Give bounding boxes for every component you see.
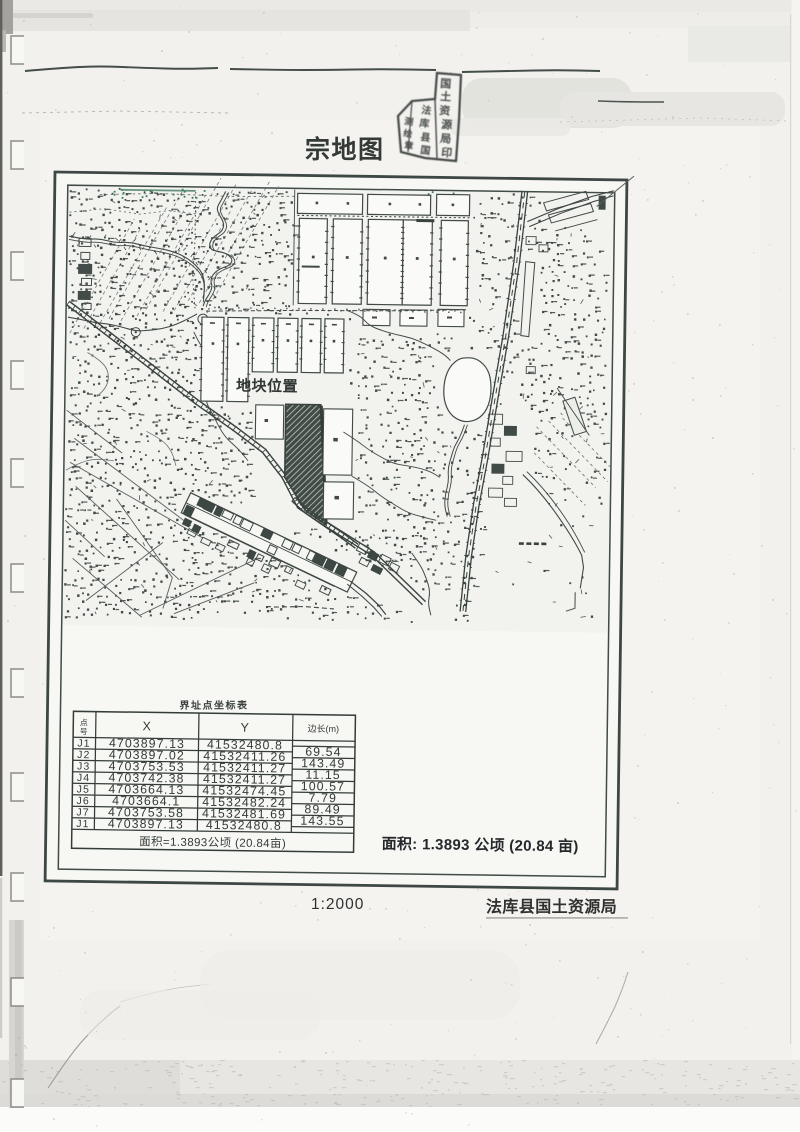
svg-text:章: 章 [404,139,414,151]
svg-text:41532480.8: 41532480.8 [206,818,282,833]
svg-text:Y: Y [240,721,250,735]
svg-text:点: 点 [80,718,89,727]
svg-text:143.55: 143.55 [300,814,344,829]
svg-text:J1: J1 [76,818,89,830]
svg-text:法库县国土资源局: 法库县国土资源局 [486,897,617,916]
svg-text:J7: J7 [76,807,89,819]
svg-text:J4: J4 [77,772,90,784]
svg-text:宗地图: 宗地图 [305,135,385,164]
svg-text:面积: 1.3893 公顷 (20.84 亩): 面积: 1.3893 公顷 (20.84 亩) [382,835,579,856]
svg-text:1:2000: 1:2000 [311,896,364,913]
svg-text:边长(m): 边长(m) [307,723,339,734]
svg-text:4703897.13: 4703897.13 [108,817,184,832]
svg-text:资: 资 [439,103,451,118]
svg-text:J1: J1 [77,738,90,750]
svg-text:X: X [142,719,152,733]
svg-text:国: 国 [420,144,432,157]
svg-text:J2: J2 [77,749,90,761]
svg-text:J5: J5 [77,784,90,796]
svg-text:国: 国 [440,77,452,91]
svg-text:地块位置: 地块位置 [236,377,298,396]
svg-text:J6: J6 [76,795,89,807]
svg-text:局: 局 [439,132,452,146]
svg-text:绘: 绘 [403,127,413,139]
svg-text:县: 县 [420,131,432,144]
svg-text:印: 印 [441,146,453,160]
svg-text:J3: J3 [77,761,90,773]
svg-text:界址点坐标表: 界址点坐标表 [179,699,248,712]
svg-text:土: 土 [440,89,452,104]
svg-text:号: 号 [80,727,89,736]
svg-text:源: 源 [441,117,453,132]
svg-text:测: 测 [404,115,414,127]
